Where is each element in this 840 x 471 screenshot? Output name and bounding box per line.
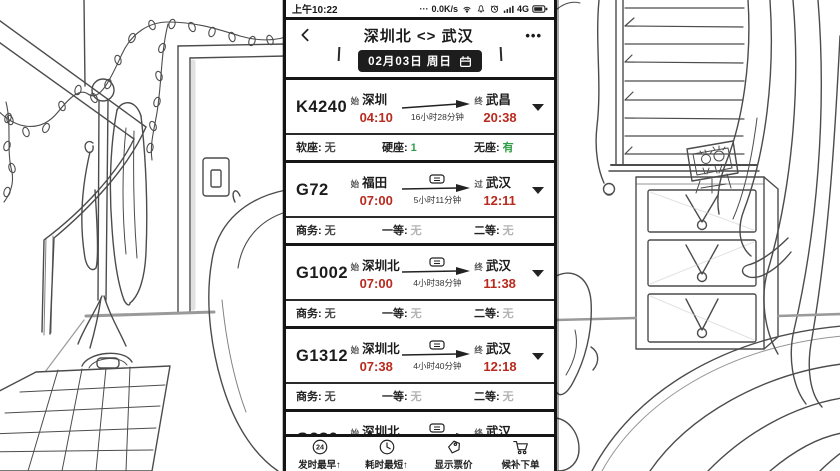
window-blinds-sketch [625,8,744,154]
back-icon[interactable] [298,27,312,43]
destination-block: 终武汉 12:27 [474,421,528,434]
origin-block: 始深圳 04:10 [351,89,401,125]
route-block: 4小时38分钟 [400,258,474,289]
toolbar-label: 显示票价 [434,457,472,471]
origin-station: 深圳北 [362,255,400,274]
phone-screen: 上午10:22 ··· 0.0K/s 4G [283,0,557,471]
train-number: G1312 [296,347,351,366]
seat-availability: 无 [503,388,514,404]
train-card[interactable]: G280 始深圳北 07:43 4小时44分钟 终武汉 12:27 [286,412,554,434]
origin-station: 深圳北 [362,338,400,357]
destination-station: 武汉 [486,172,511,191]
train-number: G72 [296,181,351,200]
arrival-time: 11:38 [474,276,528,291]
train-type-badge-icon [429,423,445,433]
overflow-dots-icon: ··· [419,4,428,14]
status-time: 上午10:22 [292,1,338,16]
origin-block: 始福田 07:00 [351,172,401,208]
seat-cell: 硬座:1 [382,139,474,155]
train-card[interactable]: G1002 始深圳北 07:00 4小时38分钟 终武汉 11:38 [286,246,554,329]
departure-time: 07:00 [351,276,401,291]
destination-block: 终武昌 20:38 [474,89,528,125]
signal-bars-icon [503,4,514,14]
paw-sketch [555,273,591,394]
alarm-clock-icon [489,3,500,14]
wifi-icon [461,3,473,14]
battery-icon [532,4,548,14]
seat-type-label: 商务: [296,222,322,238]
route-block: 4小时44分钟 [400,424,474,435]
cat-sketch [209,190,286,471]
destination-tag: 终 [474,427,483,434]
route-block: 16小时28分钟 [400,92,474,123]
origin-tag: 始 [351,178,360,190]
bottom-toolbar: 24 发时最早↑ 耗时最短↑ 显示票价 候补下单 [286,434,554,471]
seat-availability: 1 [411,142,417,154]
show-price-button[interactable]: 显示票价 [420,438,487,471]
seat-type-label: 一等: [382,305,408,321]
light-switch-sketch [203,158,229,196]
left-room-sketch [0,0,286,471]
arrival-time: 20:38 [474,110,528,125]
train-main-row: G72 始福田 07:00 5小时11分钟 过武汉 12:11 [286,163,554,216]
destination-station: 武昌 [486,89,511,108]
seat-type-label: 无座: [474,139,500,155]
seat-cell: 商务:无 [296,388,382,404]
seat-type-label: 商务: [296,388,322,404]
origin-tag: 始 [351,427,360,434]
origin-block: 始深圳北 07:00 [351,255,401,291]
departure-time: 07:00 [351,193,401,208]
dresser-sketch [636,177,778,349]
status-bar: 上午10:22 ··· 0.0K/s 4G [286,0,554,20]
seat-cell: 二等:无 [474,305,544,321]
destination-tag: 终 [474,261,483,273]
seat-type-label: 一等: [382,388,408,404]
sort-by-duration-button[interactable]: 耗时最短↑ [353,438,420,471]
seat-availability-row: 商务:无 一等:无 二等:无 [286,299,554,326]
departure-time: 04:10 [351,110,401,125]
seat-type-label: 二等: [474,222,500,238]
train-card[interactable]: G1312 始深圳北 07:38 4小时40分钟 终武汉 12:18 [286,329,554,412]
train-main-row: G280 始深圳北 07:43 4小时44分钟 终武汉 12:27 [286,412,554,434]
destination-block: 过武汉 12:11 [474,172,528,208]
duration: 4小时40分钟 [413,360,461,372]
seat-cell: 一等:无 [382,388,474,404]
seat-cell: 软座:无 [296,139,382,155]
duration: 16小时28分钟 [411,111,464,123]
seat-type-label: 软座: [296,139,322,155]
seat-type-label: 商务: [296,305,322,321]
origin-station: 福田 [362,172,387,191]
calendar-icon [459,55,472,68]
origin-tag: 始 [351,261,360,273]
seat-availability-row: 商务:无 一等:无 二等:无 [286,216,554,243]
train-card[interactable]: K4240 始深圳 04:10 16小时28分钟 终武昌 20:38 [286,80,554,163]
seat-cell: 一等:无 [382,305,474,321]
train-type-badge-icon [429,340,445,350]
origin-block: 始深圳北 07:43 [351,421,401,434]
train-number: G1002 [296,264,351,283]
bell-icon [476,3,486,14]
expand-chevron-icon[interactable] [530,268,546,278]
curtain-sketch [718,0,840,407]
seat-availability: 无 [411,222,422,238]
page-title: 深圳北 <> 武汉 [312,25,525,46]
seat-type-label: 一等: [382,222,408,238]
toolbar-label: 候补下单 [501,457,539,471]
destination-tag: 终 [474,344,483,356]
destination-station: 武汉 [486,421,511,434]
seat-availability: 无 [411,305,422,321]
app-header: 深圳北 <> 武汉 ••• [286,20,554,50]
expand-chevron-icon[interactable] [530,351,546,361]
expand-chevron-icon[interactable] [530,185,546,195]
seat-cell: 无座:有 [474,139,544,155]
train-main-row: G1312 始深圳北 07:38 4小时40分钟 终武汉 12:18 [286,329,554,382]
expand-chevron-icon[interactable] [530,102,546,112]
seat-availability: 无 [325,305,336,321]
toolbar-label: 发时最早↑ [298,457,341,471]
seat-type-label: 二等: [474,388,500,404]
right-room-sketch [555,0,840,471]
network-type: 4G [517,4,529,14]
train-main-row: K4240 始深圳 04:10 16小时28分钟 终武昌 20:38 [286,80,554,133]
date-picker-button[interactable]: 02月03日 周日 [358,50,482,72]
seat-cell: 商务:无 [296,222,382,238]
destination-block: 终武汉 12:18 [474,338,528,374]
train-type-badge-icon [429,174,445,184]
seat-availability: 无 [503,305,514,321]
toolbar-label: 耗时最短↑ [365,457,408,471]
seat-availability-row: 软座:无 硬座:1 无座:有 [286,133,554,160]
origin-block: 始深圳北 07:38 [351,338,401,374]
seat-type-label: 硬座: [382,139,408,155]
date-label: 02月03日 周日 [368,53,452,69]
seat-cell: 二等:无 [474,388,544,404]
date-row: 02月03日 周日 [286,50,554,80]
seat-cell: 商务:无 [296,305,382,321]
duration: 5小时11分钟 [414,194,462,206]
clock-icon [378,438,396,456]
network-speed: 0.0K/s [431,4,458,14]
destination-station: 武汉 [486,255,511,274]
svg-text:24: 24 [316,442,324,451]
seat-availability: 无 [325,139,336,155]
seat-availability-row: 商务:无 一等:无 二等:无 [286,382,554,409]
seat-cell: 一等:无 [382,222,474,238]
cart-icon [512,438,530,456]
price-tag-icon [445,438,463,456]
seat-availability: 无 [503,222,514,238]
route-block: 5小时11分钟 [400,175,474,206]
destination-tag: 过 [474,178,483,190]
sort-by-departure-button[interactable]: 24 发时最早↑ [286,438,353,471]
destination-station: 武汉 [486,338,511,357]
train-number: K4240 [296,98,351,117]
train-card[interactable]: G72 始福田 07:00 5小时11分钟 过武汉 12:11 [286,163,554,246]
train-type-badge-icon [429,257,445,267]
seat-availability: 无 [325,388,336,404]
badge-24-icon: 24 [311,438,329,456]
arrival-time: 12:11 [474,193,528,208]
origin-station: 深圳 [362,89,387,108]
arrival-time: 12:18 [474,359,528,374]
route-block: 4小时40分钟 [400,341,474,372]
departure-time: 07:38 [351,359,401,374]
seat-availability: 无 [411,388,422,404]
seat-availability: 有 [503,139,514,155]
waitlist-order-button[interactable]: 候补下单 [487,438,554,471]
more-icon[interactable]: ••• [525,28,542,43]
origin-tag: 始 [351,95,360,107]
seat-type-label: 二等: [474,305,500,321]
destination-block: 终武汉 11:38 [474,255,528,291]
duration: 4小时38分钟 [413,277,461,289]
origin-tag: 始 [351,344,360,356]
route-arrow-icon [400,98,474,110]
train-main-row: G1002 始深圳北 07:00 4小时38分钟 终武汉 11:38 [286,246,554,299]
seat-cell: 二等:无 [474,222,544,238]
destination-tag: 终 [474,95,483,107]
table-sketch [0,366,170,471]
train-list: K4240 始深圳 04:10 16小时28分钟 终武昌 20:38 [286,80,554,434]
seat-availability: 无 [325,222,336,238]
origin-station: 深圳北 [362,421,400,434]
